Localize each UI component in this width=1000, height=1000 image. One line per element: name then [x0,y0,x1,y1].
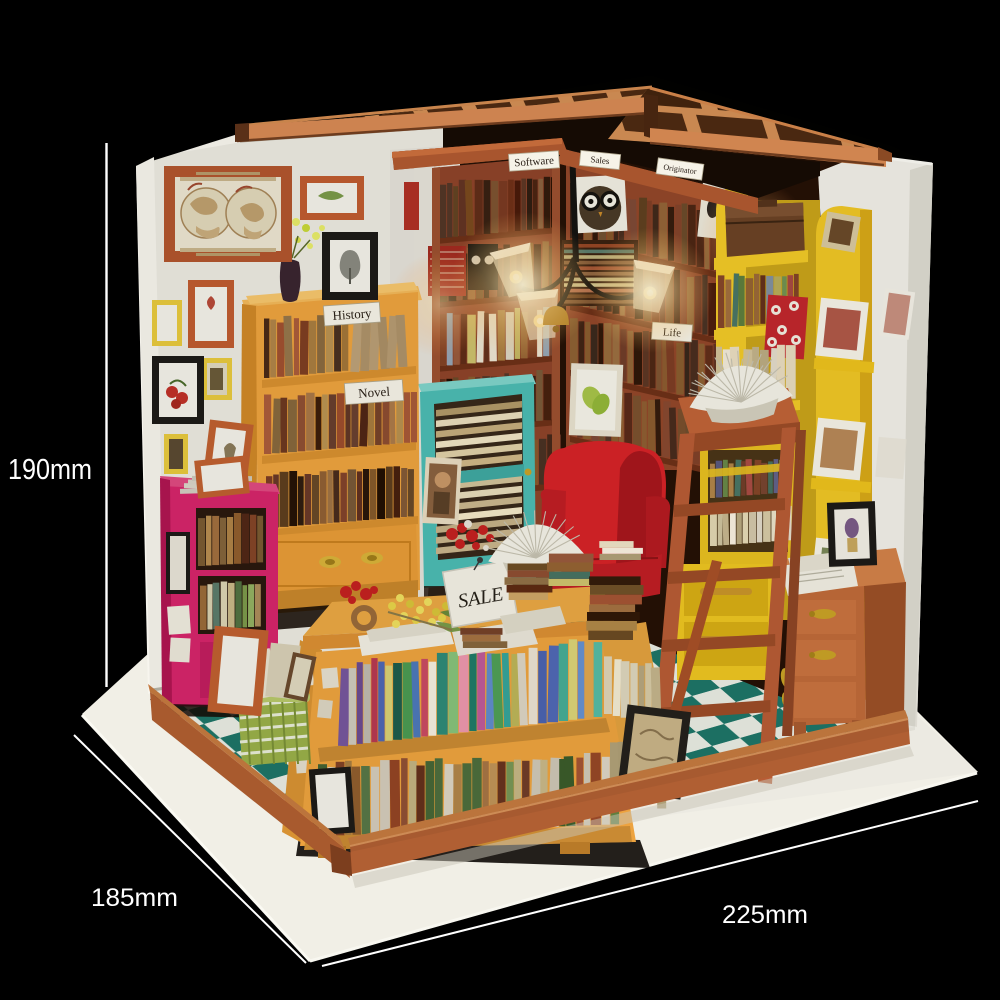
svg-text:185mm: 185mm [91,884,178,912]
svg-text:190mm: 190mm [8,454,92,486]
svg-text:Sales: Sales [590,154,610,166]
svg-text:225mm: 225mm [722,901,808,929]
